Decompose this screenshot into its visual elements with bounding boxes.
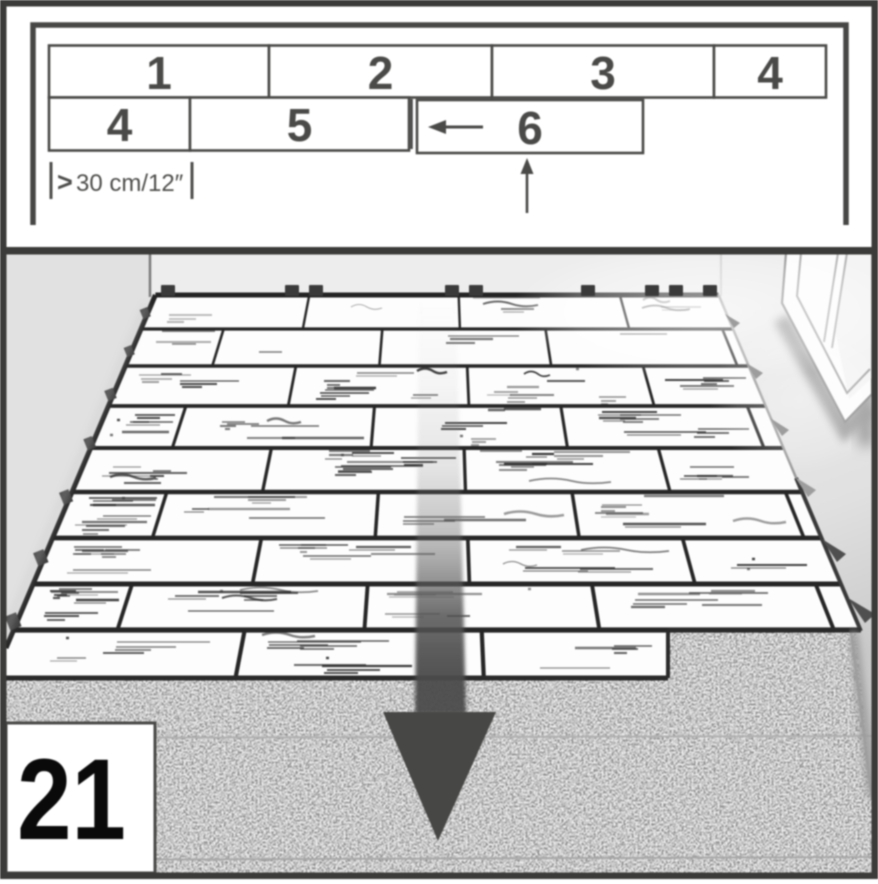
- svg-text:4: 4: [757, 47, 783, 99]
- svg-text:2: 2: [368, 47, 394, 99]
- svg-text:3: 3: [590, 47, 616, 99]
- svg-text:5: 5: [287, 99, 313, 151]
- svg-text:21: 21: [17, 734, 126, 863]
- svg-text:30 cm/12″: 30 cm/12″: [76, 170, 184, 197]
- svg-text:4: 4: [107, 99, 133, 151]
- svg-text:>: >: [57, 167, 73, 197]
- svg-text:1: 1: [146, 47, 172, 99]
- svg-text:6: 6: [517, 102, 543, 154]
